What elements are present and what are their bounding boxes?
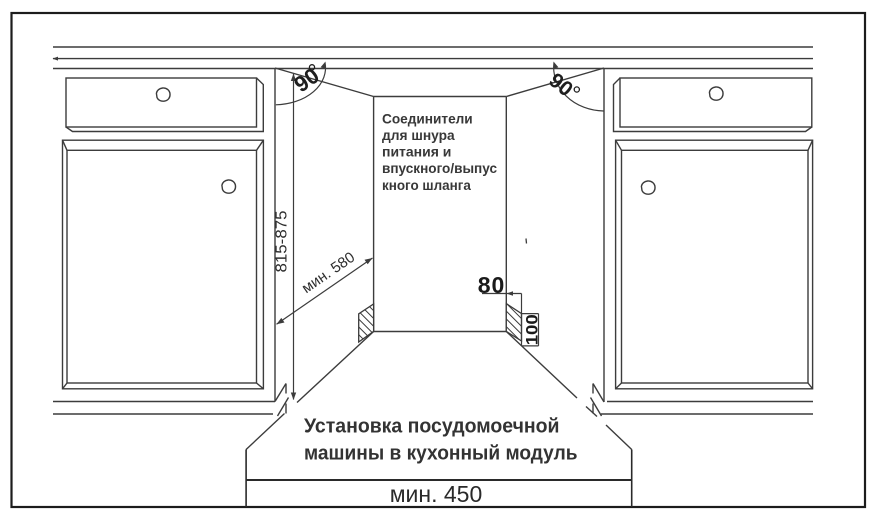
svg-text:мин. 450: мин. 450 xyxy=(390,481,483,507)
svg-text:Соединители: Соединители xyxy=(382,112,473,128)
svg-text:питания и: питания и xyxy=(382,145,451,161)
svg-text:100: 100 xyxy=(524,314,542,345)
svg-text:815-875: 815-875 xyxy=(274,210,291,272)
svg-text:Установка посудомоечной: Установка посудомоечной xyxy=(304,415,560,438)
svg-text:кного шланга: кного шланга xyxy=(382,178,471,194)
svg-text:80: 80 xyxy=(478,272,506,298)
svg-text:машины в кухонный модуль: машины в кухонный модуль xyxy=(304,442,578,465)
svg-text:впускного/выпус: впускного/выпус xyxy=(382,161,497,177)
svg-text:для шнура: для шнура xyxy=(382,128,455,144)
